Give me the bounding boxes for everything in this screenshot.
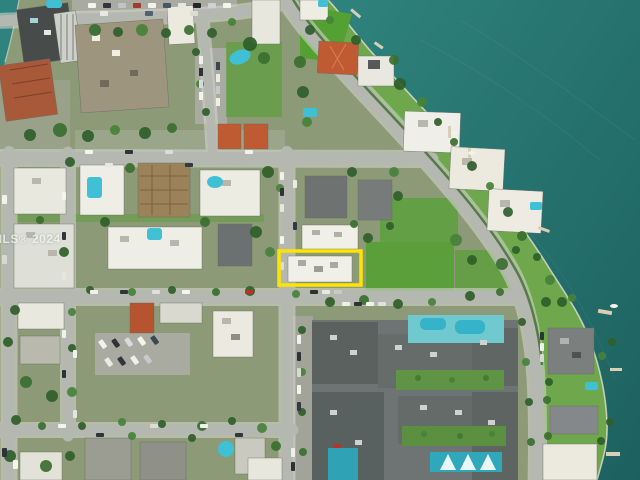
aerial-photo: MLS® 2024 (0, 0, 640, 480)
red-car (245, 290, 253, 294)
building-red-roof-a (218, 124, 241, 149)
complex-layer (312, 315, 518, 480)
aerial-photo-canvas (0, 0, 640, 480)
building-red-roof-b (244, 124, 268, 149)
red-car (334, 444, 341, 448)
building-rust-roof (0, 59, 58, 122)
